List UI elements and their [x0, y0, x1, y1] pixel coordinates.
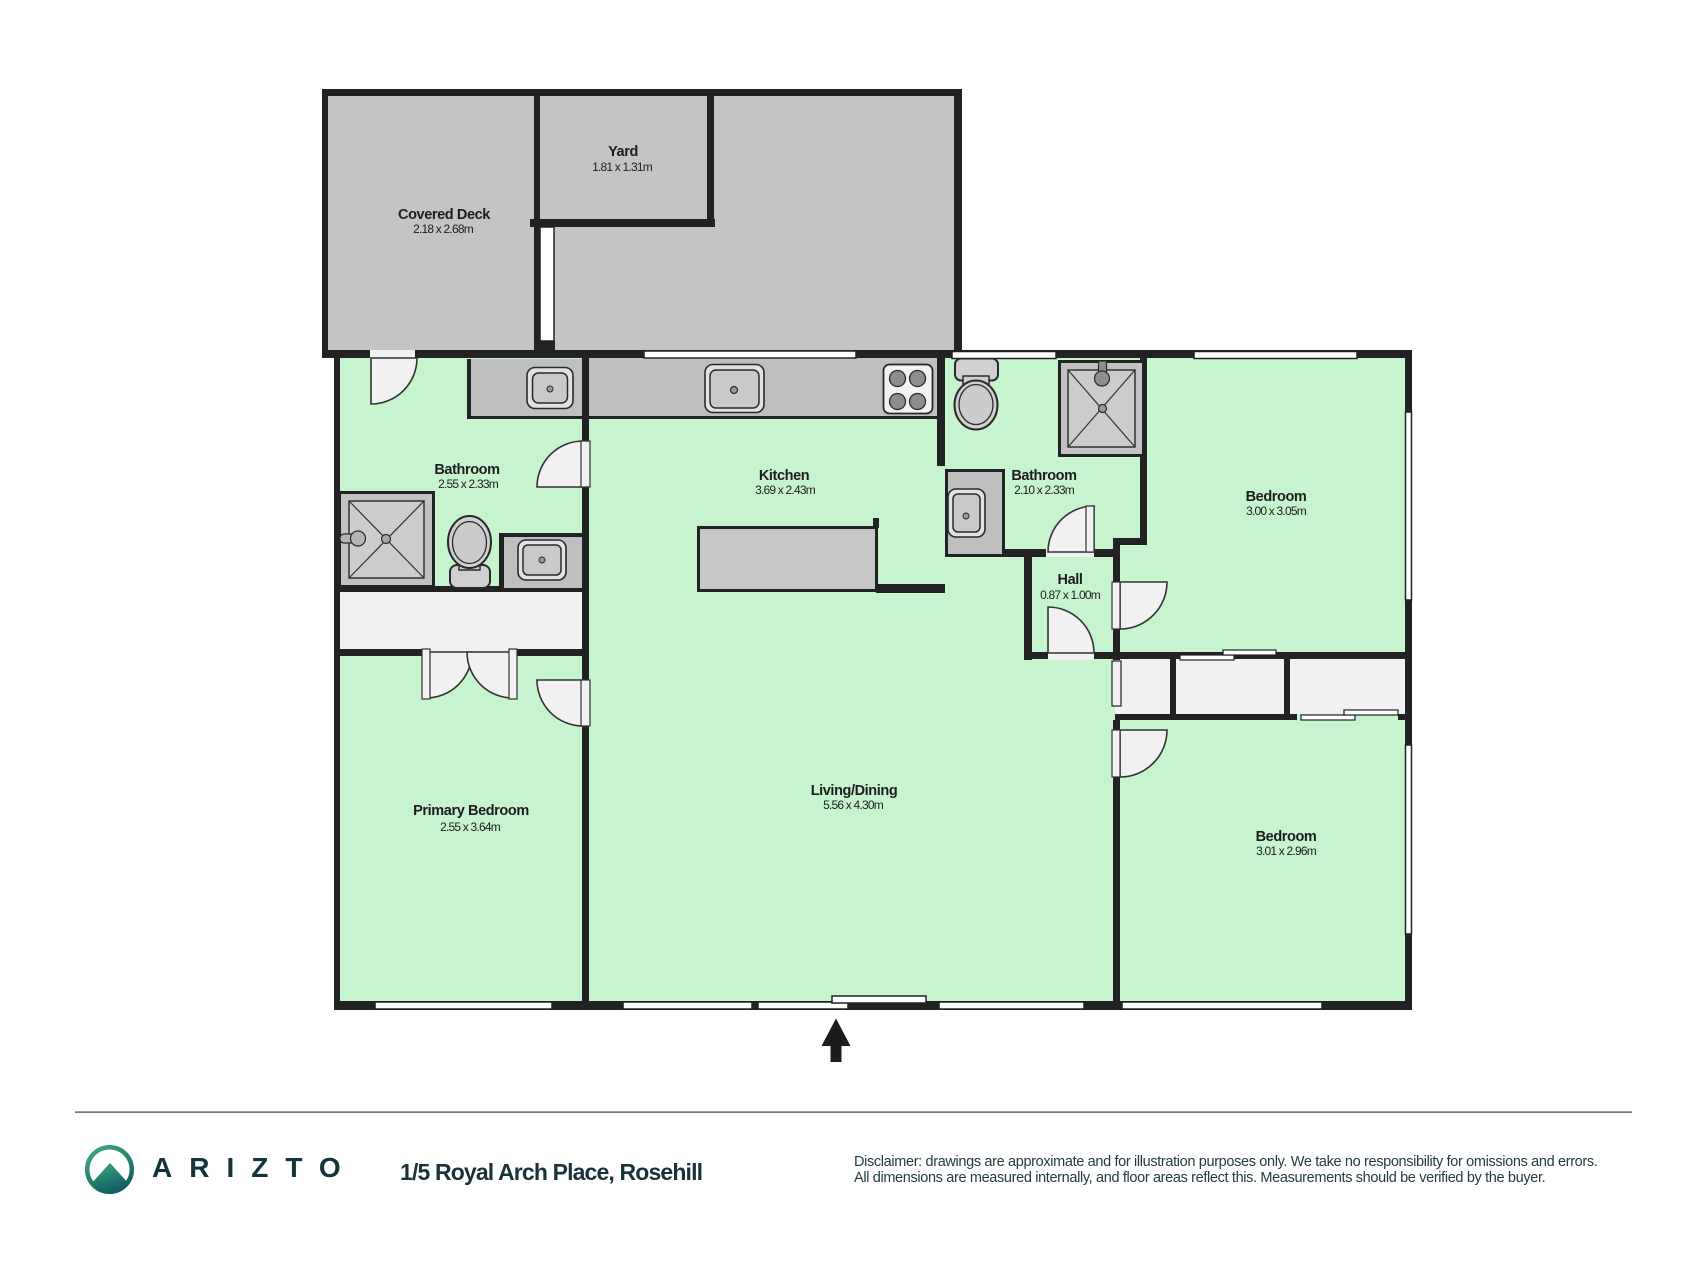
- svg-text:Bedroom: Bedroom: [1256, 829, 1317, 845]
- svg-text:5.56 x 4.30m: 5.56 x 4.30m: [823, 798, 884, 812]
- svg-text:2.18 x 2.68m: 2.18 x 2.68m: [413, 222, 474, 236]
- svg-text:Disclaimer: drawings are appro: Disclaimer: drawings are approximate and…: [854, 1154, 1597, 1170]
- svg-text:3.69 x 2.43m: 3.69 x 2.43m: [755, 483, 816, 497]
- svg-text:Yard: Yard: [608, 144, 638, 160]
- svg-text:Primary Bedroom: Primary Bedroom: [413, 803, 529, 819]
- svg-text:1.81 x 1.31m: 1.81 x 1.31m: [592, 160, 653, 174]
- svg-text:Bedroom: Bedroom: [1246, 489, 1307, 505]
- svg-text:2.55 x 2.33m: 2.55 x 2.33m: [438, 477, 499, 491]
- svg-text:ARIZTO: ARIZTO: [152, 1152, 358, 1183]
- svg-text:Hall: Hall: [1058, 572, 1083, 588]
- svg-text:3.01 x 2.96m: 3.01 x 2.96m: [1256, 844, 1317, 858]
- svg-text:Bathroom: Bathroom: [1011, 468, 1076, 484]
- svg-text:Covered Deck: Covered Deck: [398, 207, 491, 223]
- svg-text:Bathroom: Bathroom: [434, 462, 499, 478]
- svg-text:0.87 x 1.00m: 0.87 x 1.00m: [1040, 588, 1101, 602]
- svg-text:2.55 x 3.64m: 2.55 x 3.64m: [440, 820, 501, 834]
- svg-text:3.00 x 3.05m: 3.00 x 3.05m: [1246, 504, 1307, 518]
- svg-text:2.10 x 2.33m: 2.10 x 2.33m: [1014, 483, 1075, 497]
- svg-text:Living/Dining: Living/Dining: [811, 783, 898, 799]
- svg-text:All dimensions are measured in: All dimensions are measured internally, …: [854, 1170, 1545, 1186]
- svg-text:1/5 Royal Arch Place, Rosehill: 1/5 Royal Arch Place, Rosehill: [400, 1159, 702, 1185]
- svg-text:Kitchen: Kitchen: [759, 468, 809, 484]
